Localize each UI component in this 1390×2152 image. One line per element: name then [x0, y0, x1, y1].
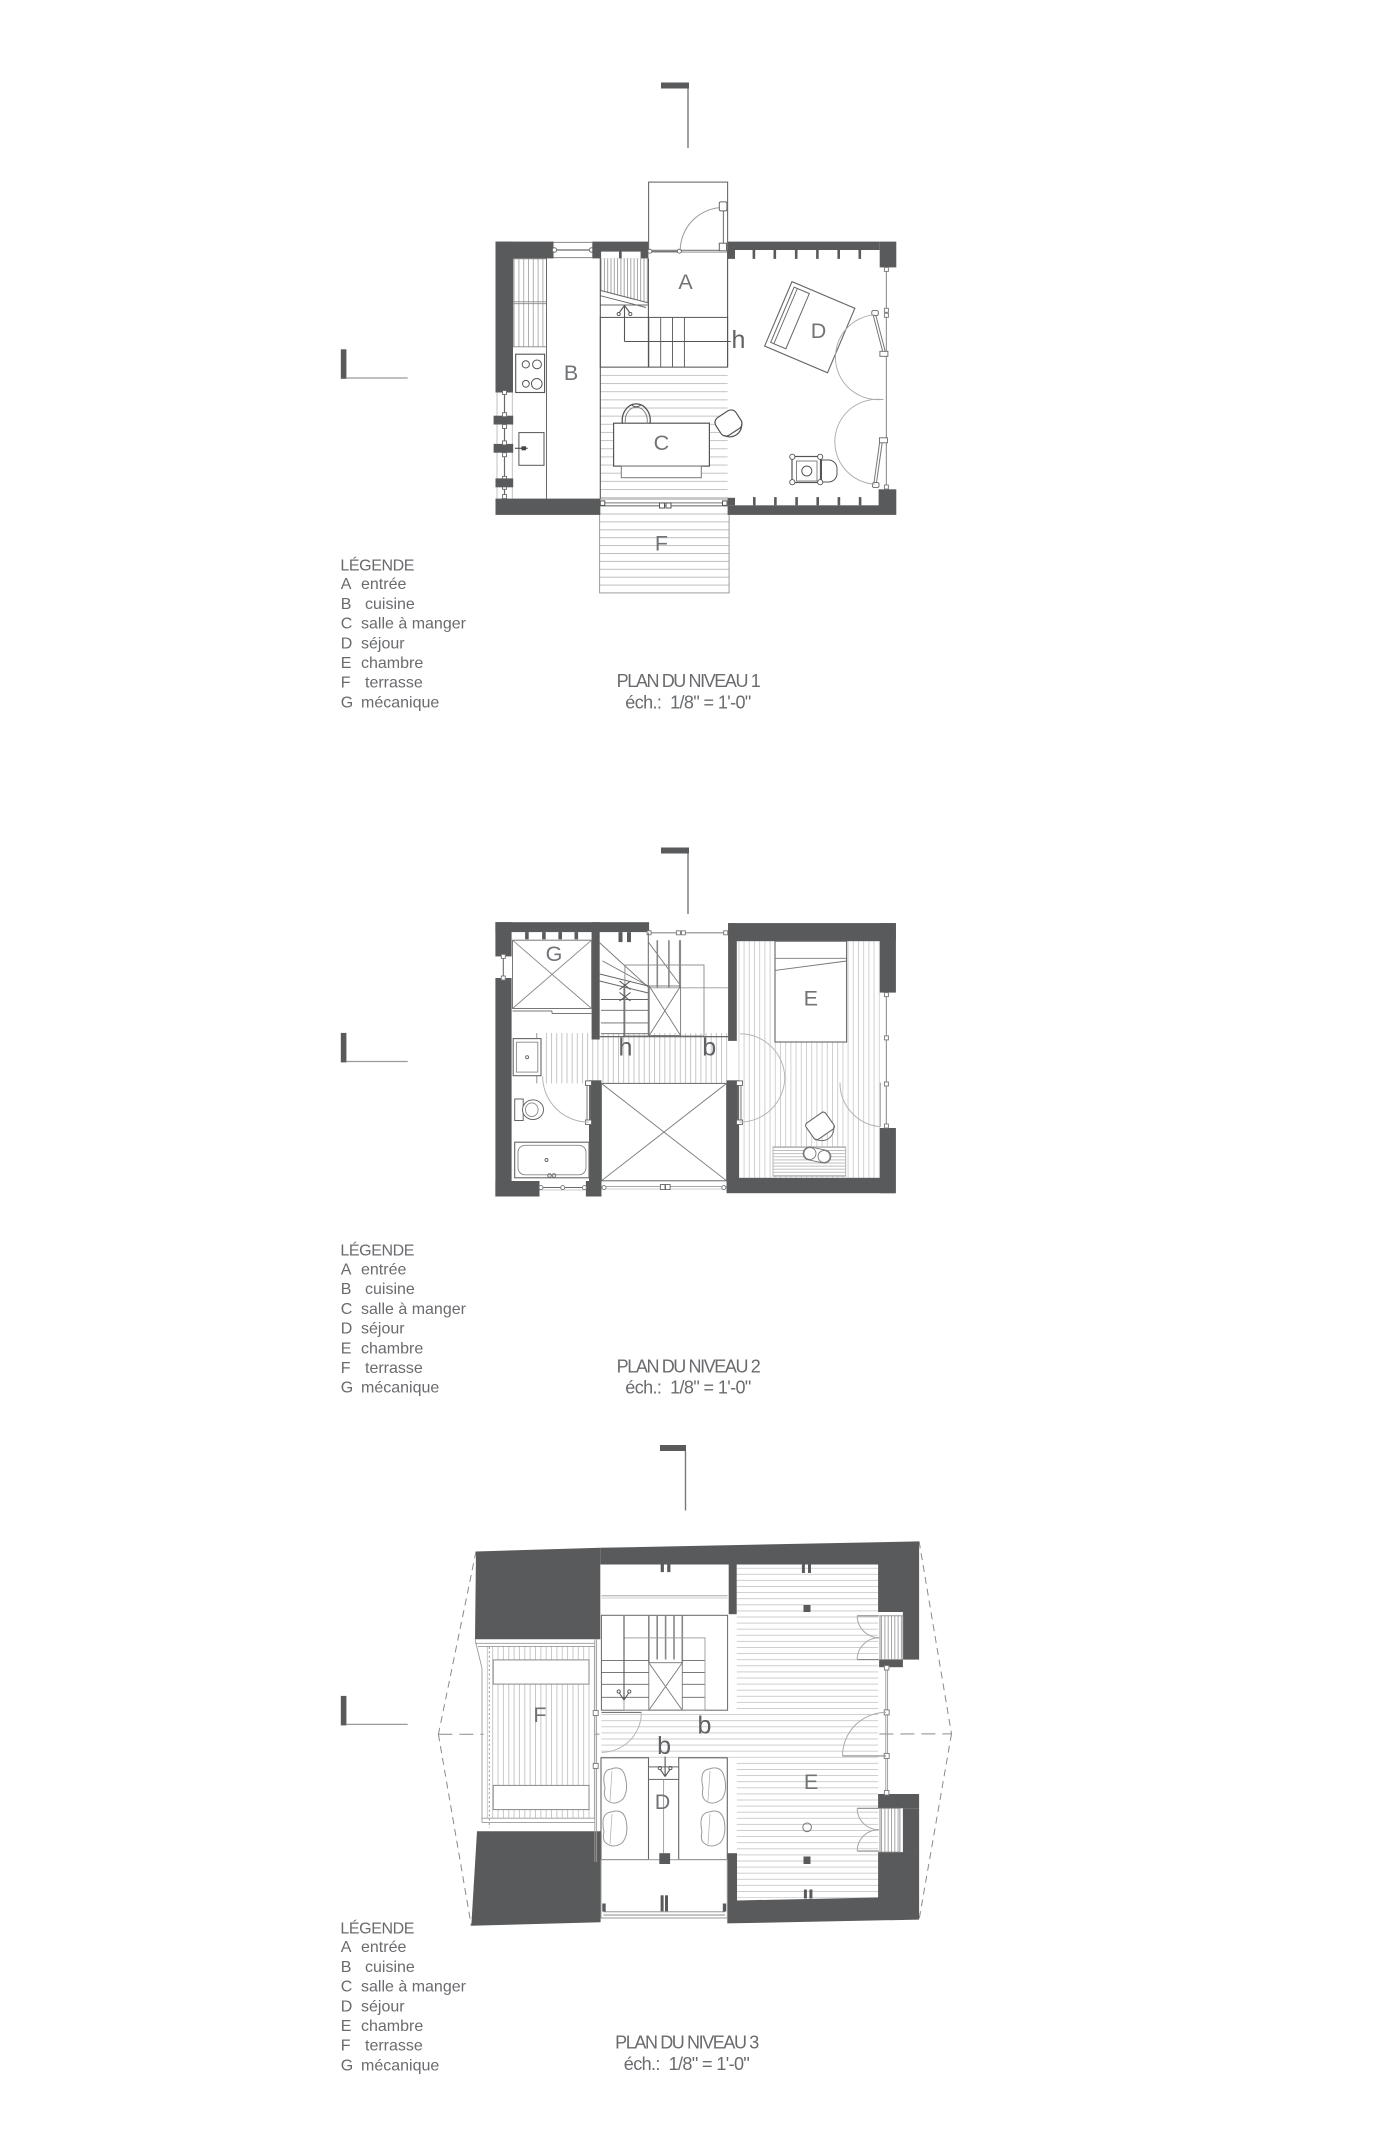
- svg-text:A: A: [341, 576, 352, 593]
- svg-text:LÉGENDE: LÉGENDE: [340, 555, 414, 574]
- svg-text:F: F: [533, 1703, 546, 1727]
- svg-text:B: B: [341, 1959, 352, 1976]
- svg-text:D: D: [811, 319, 827, 343]
- svg-text:entrée: entrée: [361, 1262, 406, 1279]
- svg-text:chambre: chambre: [361, 2018, 423, 2035]
- svg-text:E: E: [804, 987, 818, 1011]
- svg-text:PLAN DU NIVEAU 2: PLAN DU NIVEAU 2: [617, 1356, 761, 1376]
- svg-text:G: G: [341, 1380, 353, 1397]
- svg-text:F: F: [341, 1360, 351, 1377]
- svg-text:E: E: [341, 1340, 352, 1357]
- svg-text:G: G: [546, 942, 563, 966]
- svg-text:C: C: [341, 1979, 353, 1996]
- svg-text:cuisine: cuisine: [365, 1959, 415, 1976]
- svg-text:salle à manger: salle à manger: [361, 616, 467, 633]
- svg-text:B: B: [564, 361, 578, 385]
- svg-text:éch.: 1/8" = 1'-0": éch.: 1/8" = 1'-0": [624, 2054, 750, 2074]
- svg-text:chambre: chambre: [361, 1340, 423, 1357]
- svg-text:séjour: séjour: [361, 1998, 405, 2015]
- svg-text:entrée: entrée: [361, 576, 406, 593]
- svg-text:séjour: séjour: [361, 635, 405, 652]
- svg-text:éch.: 1/8" = 1'-0": éch.: 1/8" = 1'-0": [625, 692, 751, 712]
- svg-text:E: E: [341, 2018, 352, 2035]
- svg-text:b: b: [657, 1732, 671, 1760]
- svg-text:A: A: [341, 1262, 352, 1279]
- svg-text:mécanique: mécanique: [361, 1380, 439, 1397]
- svg-text:D: D: [341, 635, 353, 652]
- svg-text:terrasse: terrasse: [365, 675, 423, 692]
- svg-text:LÉGENDE: LÉGENDE: [340, 1241, 414, 1260]
- svg-text:b: b: [698, 1712, 712, 1740]
- svg-text:B: B: [341, 1281, 352, 1298]
- svg-text:PLAN DU NIVEAU 1: PLAN DU NIVEAU 1: [617, 671, 761, 691]
- svg-text:terrasse: terrasse: [365, 1360, 423, 1377]
- svg-text:F: F: [341, 675, 351, 692]
- svg-text:G: G: [341, 694, 353, 711]
- svg-text:h: h: [732, 326, 746, 354]
- svg-text:F: F: [341, 2038, 351, 2055]
- svg-text:F: F: [655, 532, 668, 556]
- svg-text:chambre: chambre: [361, 655, 423, 672]
- svg-text:cuisine: cuisine: [365, 1281, 415, 1298]
- svg-text:PLAN DU NIVEAU 3: PLAN DU NIVEAU 3: [615, 2033, 759, 2053]
- svg-text:C: C: [341, 1301, 353, 1318]
- svg-text:LÉGENDE: LÉGENDE: [340, 1918, 414, 1937]
- svg-text:entrée: entrée: [361, 1939, 406, 1956]
- svg-text:mécanique: mécanique: [361, 694, 439, 711]
- svg-text:D: D: [341, 1321, 353, 1338]
- svg-text:C: C: [341, 616, 353, 633]
- svg-text:A: A: [678, 270, 693, 294]
- svg-text:salle à manger: salle à manger: [361, 1301, 467, 1318]
- svg-text:B: B: [341, 596, 352, 613]
- svg-text:mécanique: mécanique: [361, 2057, 439, 2074]
- svg-text:séjour: séjour: [361, 1321, 405, 1338]
- svg-text:h: h: [619, 1033, 633, 1061]
- svg-text:terrasse: terrasse: [365, 2038, 423, 2055]
- svg-text:D: D: [341, 1998, 353, 2015]
- svg-text:E: E: [804, 1770, 818, 1794]
- svg-text:éch.: 1/8" = 1'-0": éch.: 1/8" = 1'-0": [625, 1378, 751, 1398]
- svg-text:C: C: [654, 431, 670, 455]
- svg-text:G: G: [341, 2057, 353, 2074]
- svg-text:A: A: [341, 1939, 352, 1956]
- svg-text:b: b: [702, 1033, 716, 1061]
- svg-text:E: E: [341, 655, 352, 672]
- svg-text:salle à manger: salle à manger: [361, 1979, 467, 1996]
- svg-text:D: D: [655, 1790, 671, 1814]
- svg-text:cuisine: cuisine: [365, 596, 415, 613]
